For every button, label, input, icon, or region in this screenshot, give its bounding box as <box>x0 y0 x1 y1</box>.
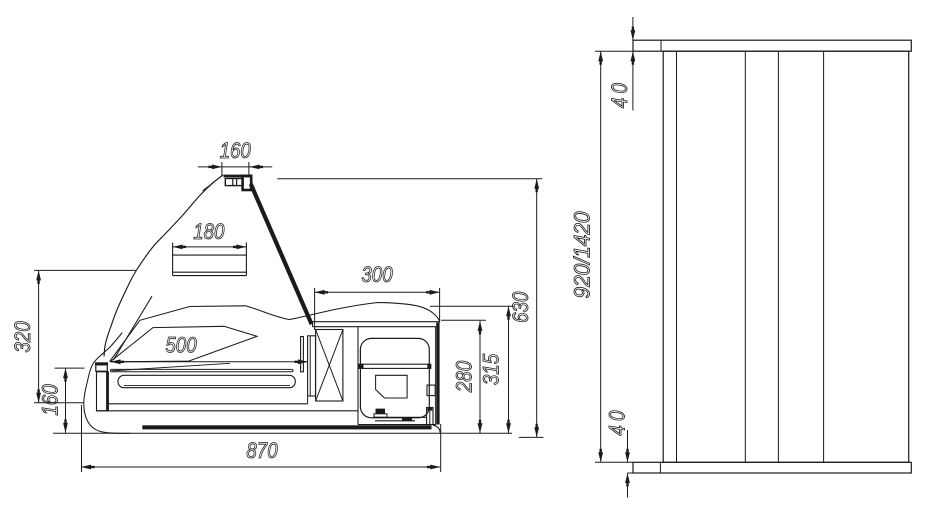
svg-text:500: 500 <box>165 334 197 358</box>
svg-text:320: 320 <box>12 321 36 353</box>
svg-text:160: 160 <box>39 384 63 416</box>
svg-text:870: 870 <box>246 440 278 464</box>
svg-text:160: 160 <box>220 140 252 164</box>
svg-text:40: 40 <box>609 79 633 108</box>
svg-text:40: 40 <box>606 406 630 435</box>
svg-text:300: 300 <box>361 264 393 288</box>
svg-text:920/1420: 920/1420 <box>570 211 595 298</box>
svg-text:315: 315 <box>480 353 504 385</box>
svg-text:180: 180 <box>193 221 225 245</box>
svg-text:630: 630 <box>510 291 534 323</box>
svg-text:280: 280 <box>453 360 477 393</box>
